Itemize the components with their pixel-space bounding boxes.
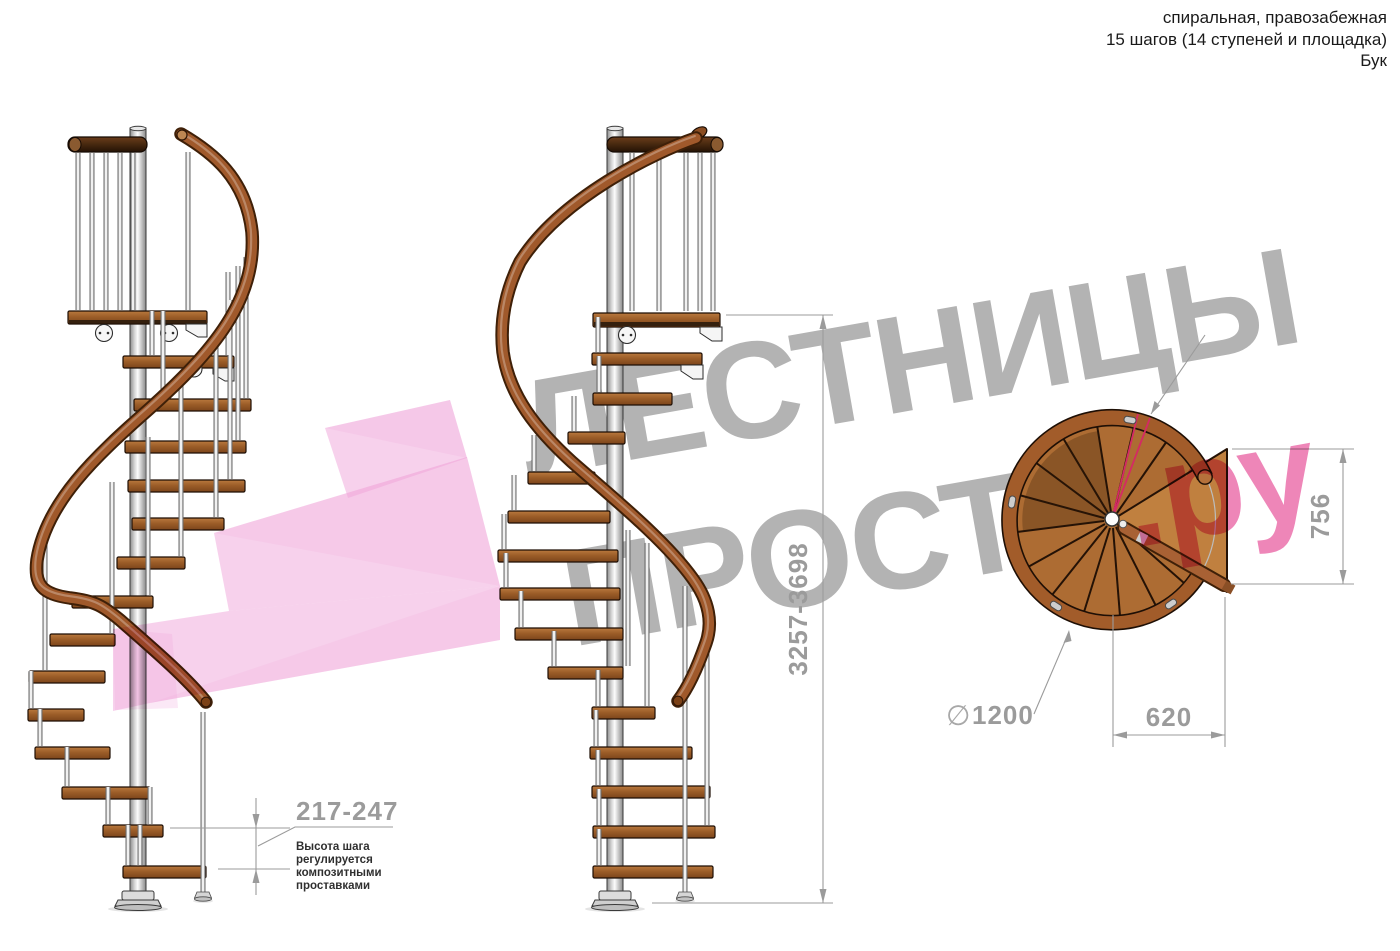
drawing-canvas: ЛЕСТНИЦЫ ПРОСТО.ру <box>0 0 1400 951</box>
stair-plan-view <box>1002 335 1233 630</box>
step-note-1: Высота шага <box>296 841 370 853</box>
title-steps: 15 шагов (14 ступеней и площадка) <box>1106 29 1387 51</box>
dim-landing-width-label: 620 <box>1146 702 1192 732</box>
diameter-symbol: ∅ <box>946 700 970 731</box>
dim-diameter-label: 1200 <box>972 700 1034 730</box>
handrail <box>501 136 709 706</box>
title-material: Бук <box>1106 50 1387 72</box>
title-block: спиральная, правозабежная 15 шагов (14 с… <box>1106 7 1387 72</box>
dim-total-height-label: 3257-3698 <box>783 542 813 675</box>
step-note-4: проставками <box>296 880 370 892</box>
staircase-technical-drawing: 3257-3698 217-247 Высота шага регулирует… <box>0 0 1400 951</box>
dimension-diameter: ∅ 1200 <box>946 630 1072 731</box>
title-type: спиральная, правозабежная <box>1106 7 1387 29</box>
dim-step-height-label: 217-247 <box>296 796 398 826</box>
dimension-total-height: 3257-3698 <box>652 315 833 903</box>
step-note-2: регулируется <box>296 854 373 866</box>
stair-side-view-1 <box>28 126 252 912</box>
stair-side-view-2 <box>498 124 723 912</box>
dim-landing-depth-label: 756 <box>1305 493 1335 539</box>
dimension-landing-depth: 756 <box>1231 449 1354 584</box>
step-note-3: композитными <box>296 867 382 879</box>
